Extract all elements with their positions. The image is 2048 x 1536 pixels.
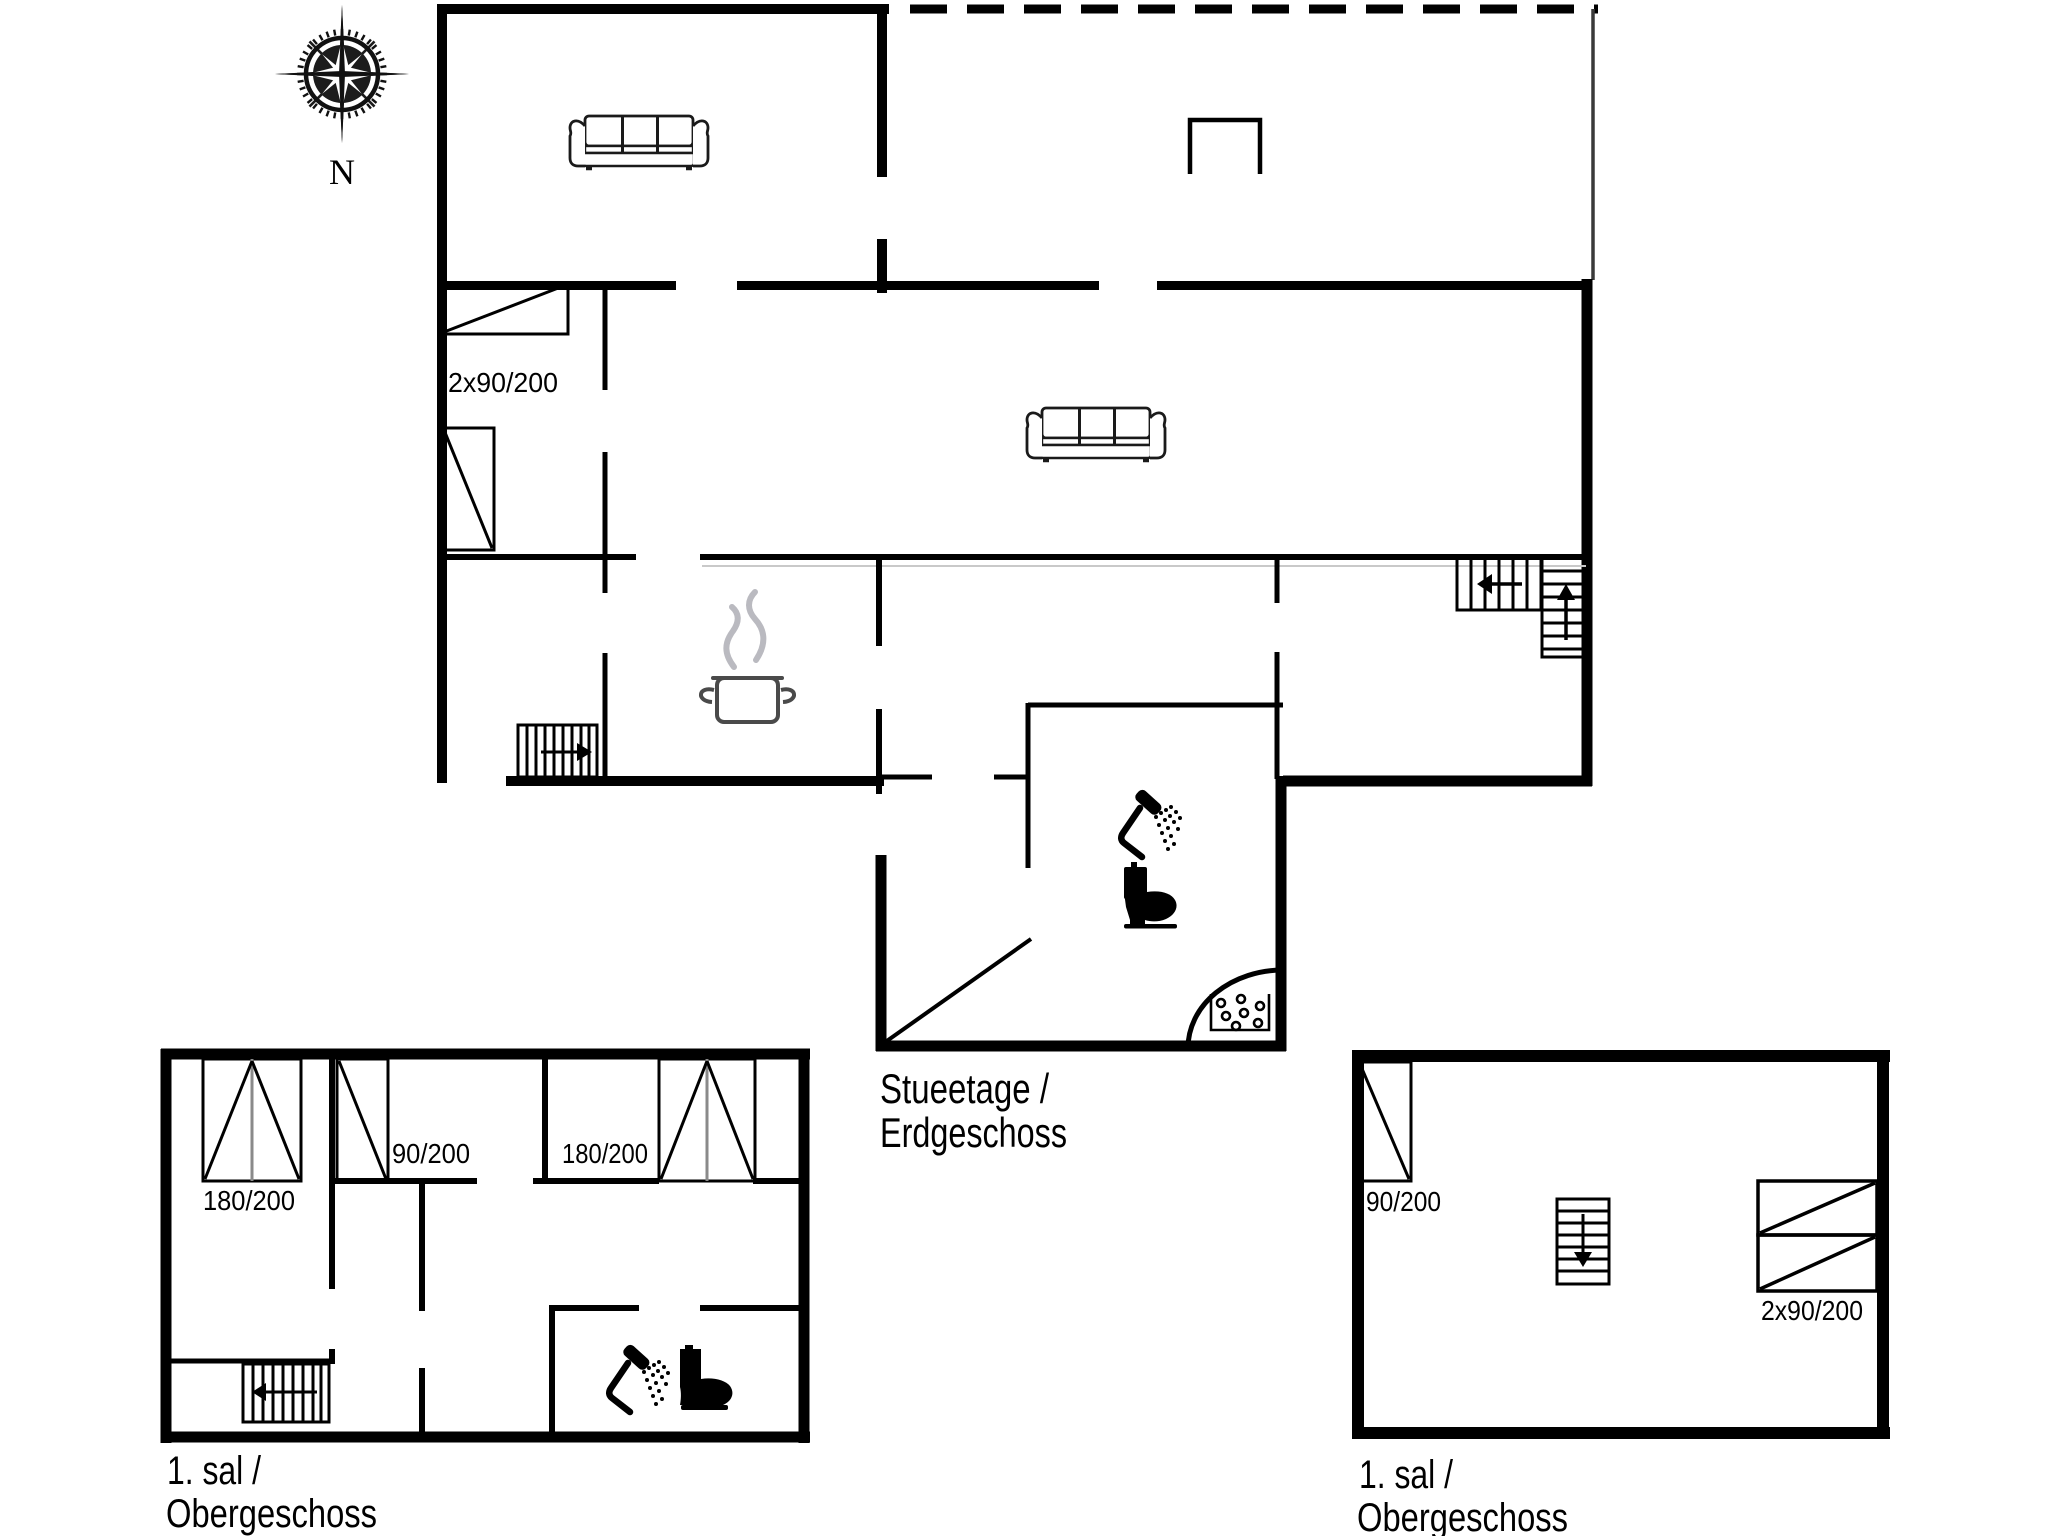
svg-text:Stueetage /: Stueetage / xyxy=(880,1065,1049,1112)
svg-text:180/200: 180/200 xyxy=(562,1138,648,1169)
svg-text:N: N xyxy=(329,152,355,192)
svg-text:90/200: 90/200 xyxy=(392,1138,470,1169)
svg-text:2x90/200: 2x90/200 xyxy=(1761,1295,1863,1326)
svg-text:90/200: 90/200 xyxy=(1366,1186,1441,1217)
svg-text:2x90/200: 2x90/200 xyxy=(448,367,558,398)
svg-text:180/200: 180/200 xyxy=(203,1185,295,1216)
svg-text:1. sal /: 1. sal / xyxy=(167,1449,262,1493)
svg-text:Erdgeschoss: Erdgeschoss xyxy=(880,1109,1067,1156)
svg-text:1. sal /: 1. sal / xyxy=(1359,1453,1454,1497)
svg-text:Obergeschoss: Obergeschoss xyxy=(1357,1496,1568,1536)
svg-text:Obergeschoss: Obergeschoss xyxy=(166,1492,377,1536)
